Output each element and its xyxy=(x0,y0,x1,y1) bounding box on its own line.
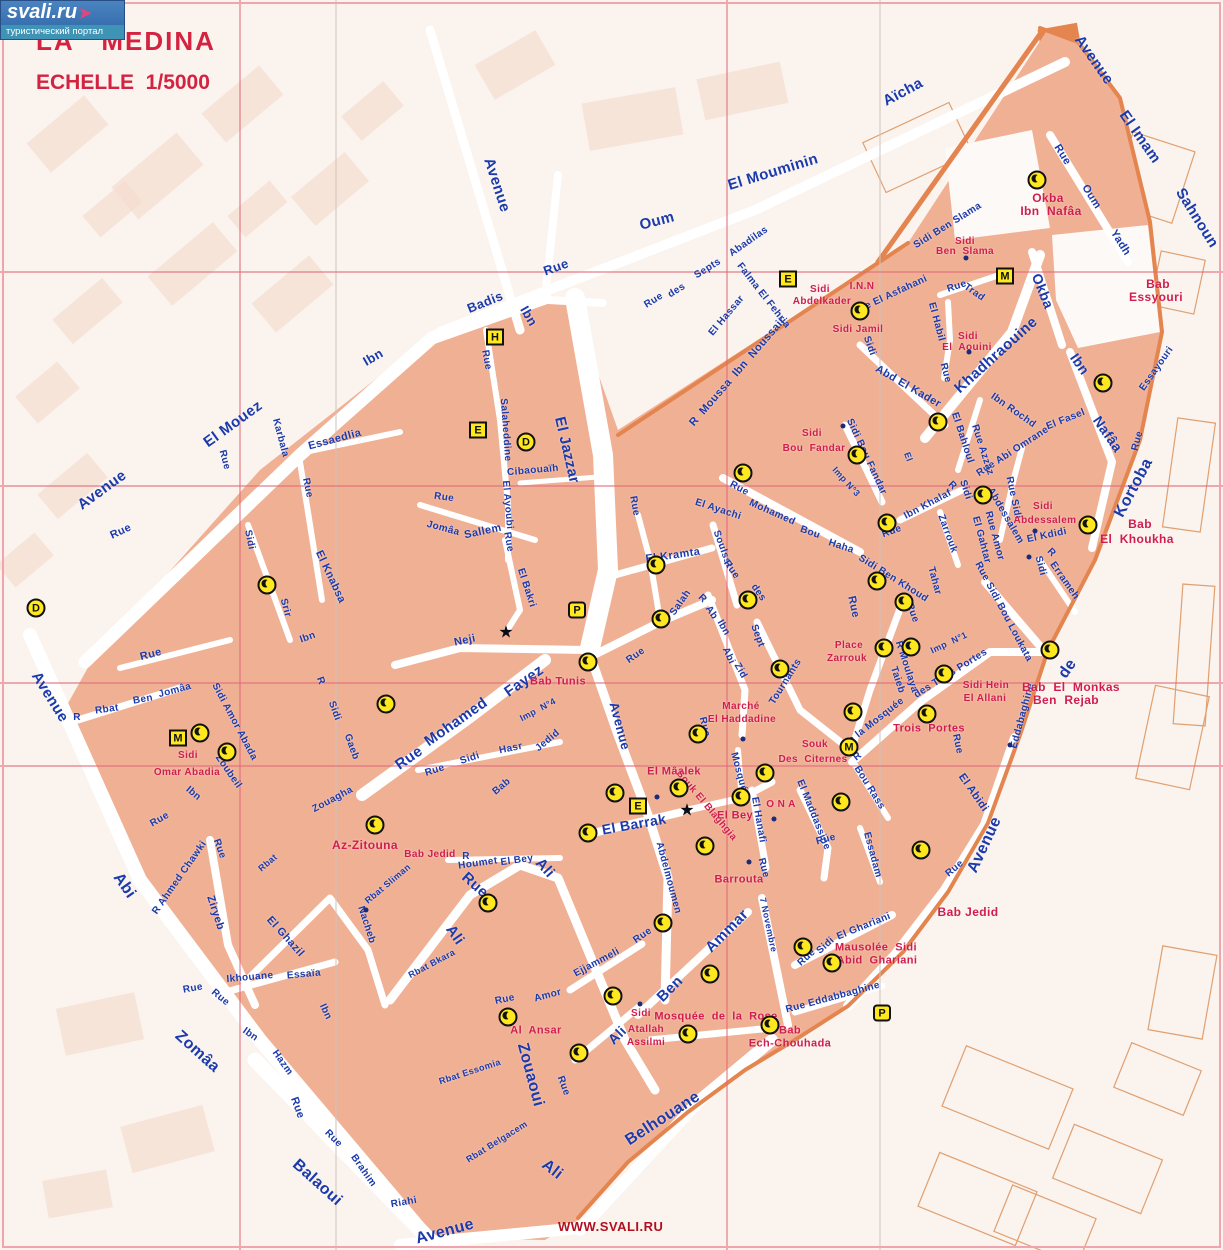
poi-label: Sidi xyxy=(1033,502,1053,512)
mosque-crescent-icon xyxy=(935,665,954,684)
city-block xyxy=(27,95,109,172)
street-label: Rue xyxy=(501,531,514,553)
mosque-crescent-icon xyxy=(670,779,689,798)
city-block xyxy=(994,1185,1096,1250)
mosque-crescent-icon xyxy=(844,703,863,722)
poi-dot xyxy=(964,256,969,261)
poi-label: Abid Ghariani xyxy=(837,956,918,967)
badge-p-icon: P xyxy=(873,1005,891,1022)
city-block xyxy=(1136,685,1210,789)
poi-label: Ibn Nafâa xyxy=(1020,205,1081,217)
poi-dot xyxy=(638,1002,643,1007)
badge-e-icon: E xyxy=(469,422,487,439)
badge-e-icon: E xyxy=(629,798,647,815)
mosque-crescent-icon xyxy=(1041,641,1060,660)
mosque-crescent-icon xyxy=(579,653,598,672)
poi-dot xyxy=(967,350,972,355)
mosque-crescent-icon xyxy=(918,705,937,724)
badge-d-icon: D xyxy=(517,433,536,452)
logo-arrow-icon: ➤ xyxy=(79,4,92,22)
svali-logo-text: svali.ru xyxy=(7,1,77,24)
mosque-crescent-icon xyxy=(929,413,948,432)
mosque-crescent-icon xyxy=(756,764,775,783)
poi-label: Essyouri xyxy=(1129,291,1183,303)
street-label: Rue xyxy=(479,349,492,371)
mosque-crescent-icon xyxy=(499,1008,518,1027)
street xyxy=(548,300,603,303)
star-marker-icon: ★ xyxy=(679,802,694,819)
mosque-crescent-icon xyxy=(366,816,385,835)
poi-label: Souk xyxy=(802,740,828,750)
badge-m-icon: M xyxy=(840,738,859,757)
poi-dot xyxy=(1008,743,1013,748)
mosque-crescent-icon xyxy=(868,572,887,591)
mosque-crescent-icon xyxy=(647,556,666,575)
mosque-crescent-icon xyxy=(654,914,673,933)
poi-label: Sidi xyxy=(631,1009,651,1019)
mosque-crescent-icon xyxy=(851,302,870,321)
city-block xyxy=(120,1105,215,1173)
poi-label: Zarrouk xyxy=(827,654,867,664)
star-marker-icon: ★ xyxy=(498,624,513,641)
city-block xyxy=(942,1046,1073,1149)
poi-label: Sidi Jamil xyxy=(833,325,884,335)
mosque-crescent-icon xyxy=(771,660,790,679)
poi-label: I.N.N xyxy=(850,282,875,292)
mosque-crescent-icon xyxy=(912,841,931,860)
mosque-crescent-icon xyxy=(570,1044,589,1063)
poi-label: Mausolée Sidi xyxy=(835,943,917,954)
city-block xyxy=(15,361,80,423)
poi-label: Abdessalem xyxy=(1014,516,1077,526)
city-block xyxy=(227,181,287,238)
city-block xyxy=(918,1152,1037,1245)
mosque-crescent-icon xyxy=(604,987,623,1006)
footer-url: WWW.SVALI.RU xyxy=(558,1219,663,1234)
badge-e-icon: E xyxy=(779,271,797,288)
svali-logo-subtitle: туристический портал xyxy=(1,25,124,39)
poi-label: Bab xyxy=(779,1026,801,1037)
poi-dot xyxy=(1033,529,1038,534)
mosque-crescent-icon xyxy=(701,965,720,984)
city-block xyxy=(52,278,122,344)
mosque-crescent-icon xyxy=(739,591,758,610)
mosque-crescent-icon xyxy=(761,1016,780,1035)
city-block xyxy=(1053,1124,1163,1213)
city-block xyxy=(697,62,789,121)
poi-label: Bab Jedid xyxy=(404,850,455,860)
mosque-crescent-icon xyxy=(218,743,237,762)
city-block xyxy=(1148,946,1217,1039)
poi-label: El Haddadine xyxy=(708,715,776,725)
mosque-crescent-icon xyxy=(1094,374,1113,393)
poi-label: Sidi xyxy=(178,751,198,761)
badge-h-icon: H xyxy=(486,329,504,346)
mosque-crescent-icon xyxy=(875,639,894,658)
poi-label: O N A xyxy=(766,800,795,810)
city-block xyxy=(1173,584,1215,726)
city-block xyxy=(42,1170,113,1219)
medina-map: AvenueRueOumEl MoumininAïchaAvenueEl Ima… xyxy=(0,0,1223,1250)
poi-label: Bab Jedid xyxy=(938,906,999,918)
badge-m-icon: M xyxy=(169,730,187,747)
poi-dot xyxy=(841,424,846,429)
mosque-crescent-icon xyxy=(1028,171,1047,190)
city-block xyxy=(56,992,144,1056)
poi-label: El Bey xyxy=(717,811,753,822)
poi-label: El Allani xyxy=(964,694,1007,704)
poi-label: Barrouta xyxy=(714,875,763,886)
svali-logo: svali.ru ➤ туристический портал xyxy=(0,0,125,40)
mosque-crescent-icon xyxy=(878,514,897,533)
poi-dot xyxy=(772,817,777,822)
mosque-crescent-icon xyxy=(377,695,396,714)
poi-label: Ech-Chouhada xyxy=(749,1039,831,1050)
mosque-crescent-icon xyxy=(652,610,671,629)
poi-label: Des Citernes xyxy=(778,755,847,765)
poi-label: Mosquée de la Rose xyxy=(654,1012,777,1023)
poi-label: Az-Zitouna xyxy=(332,839,398,851)
mosque-crescent-icon xyxy=(191,724,210,743)
street-label: R xyxy=(73,713,81,723)
mosque-crescent-icon xyxy=(902,638,921,657)
poi-dot xyxy=(1027,555,1032,560)
poi-label: Sidi xyxy=(810,285,830,295)
poi-label: Bab El Monkas xyxy=(1022,681,1120,693)
city-block xyxy=(341,81,404,141)
poi-label: Sidi xyxy=(802,429,822,439)
city-block xyxy=(1114,1043,1202,1116)
poi-label: Atallah xyxy=(628,1025,664,1035)
mosque-crescent-icon xyxy=(732,788,751,807)
city-block xyxy=(582,87,684,151)
badge-m-icon: M xyxy=(996,268,1014,285)
poi-label: Bab xyxy=(1146,278,1170,290)
poi-label: Bou Fandar xyxy=(783,444,846,454)
poi-label: Sidi Hein xyxy=(963,681,1009,691)
poi-label: Omar Abadia xyxy=(154,768,220,778)
city-block xyxy=(252,255,334,332)
city-block xyxy=(291,152,369,226)
poi-label: Marché xyxy=(722,702,759,712)
city-block xyxy=(1163,418,1216,532)
map-scale: ECHELLE 1/5000 xyxy=(36,71,216,95)
poi-dot xyxy=(747,860,752,865)
poi-dot xyxy=(741,737,746,742)
mosque-crescent-icon xyxy=(689,725,708,744)
mosque-crescent-icon xyxy=(848,446,867,465)
mosque-crescent-icon xyxy=(1079,516,1098,535)
poi-label: Bab xyxy=(1128,518,1152,530)
city-block xyxy=(0,532,54,587)
poi-label: Place xyxy=(835,641,863,651)
poi-label: Al Ansar xyxy=(510,1026,561,1037)
city-block xyxy=(475,30,556,100)
street-label: R xyxy=(462,852,470,862)
poi-label: El Khoukha xyxy=(1100,533,1174,545)
poi-dot xyxy=(655,795,660,800)
mosque-crescent-icon xyxy=(734,464,753,483)
mosque-crescent-icon xyxy=(832,793,851,812)
mosque-crescent-icon xyxy=(579,824,598,843)
mosque-crescent-icon xyxy=(679,1025,698,1044)
poi-dot xyxy=(364,908,369,913)
poi-label: Bab Tunis xyxy=(530,677,586,688)
mosque-crescent-icon xyxy=(974,486,993,505)
poi-label: Sidi xyxy=(958,332,978,342)
badge-d-icon: D xyxy=(27,599,46,618)
city-block xyxy=(148,222,238,306)
svali-logo-title: svali.ru ➤ xyxy=(1,1,124,25)
poi-label: Ben Rejab xyxy=(1033,694,1099,706)
street xyxy=(545,175,558,298)
poi-label: Trois Portes xyxy=(893,724,965,735)
street-label: Rue xyxy=(627,495,640,517)
mosque-crescent-icon xyxy=(823,954,842,973)
badge-p-icon: P xyxy=(568,602,586,619)
poi-label: Okba xyxy=(1032,192,1064,204)
mosque-crescent-icon xyxy=(794,938,813,957)
mosque-crescent-icon xyxy=(895,593,914,612)
poi-label: Assilmi xyxy=(627,1038,665,1048)
mosque-crescent-icon xyxy=(258,576,277,595)
poi-label: Abdelkader xyxy=(793,297,851,307)
mosque-crescent-icon xyxy=(479,894,498,913)
mosque-crescent-icon xyxy=(606,784,625,803)
mosque-crescent-icon xyxy=(696,837,715,856)
